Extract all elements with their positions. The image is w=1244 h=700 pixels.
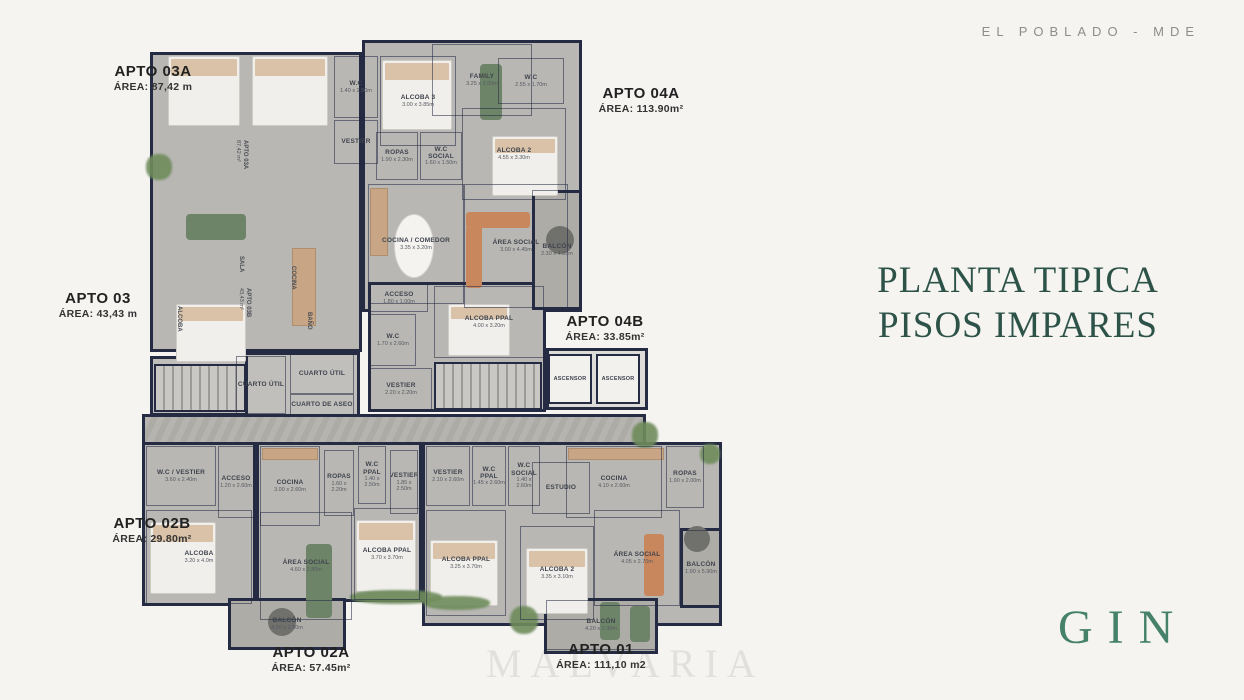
apartment-label: APTO 01ÁREA: 111,10 m2 xyxy=(556,642,646,671)
plant-icon xyxy=(424,596,490,610)
apartment-label: APTO 04BÁREA: 33.85m² xyxy=(565,314,644,343)
rotated-room-label: BAÑO xyxy=(305,312,312,330)
apartment-label: APTO 03AÁREA: 87,42 m xyxy=(114,64,193,93)
apartment-label: APTO 03ÁREA: 43,43 m xyxy=(59,291,138,320)
bed-icon xyxy=(492,136,558,196)
sofa-g-icon xyxy=(306,544,332,618)
bed-icon xyxy=(526,548,588,614)
sofa-o-icon xyxy=(466,226,482,288)
sofa-g-icon xyxy=(186,214,246,240)
rotated-room-label: ALCOBA xyxy=(175,306,182,332)
sofa-g-icon xyxy=(600,602,620,640)
bed-icon xyxy=(176,304,246,362)
sofa-g-icon xyxy=(480,64,502,120)
apartment-label: APTO 02AÁREA: 57.45m² xyxy=(271,645,350,674)
plant-icon xyxy=(700,444,720,464)
rotated-room-label: SALA xyxy=(237,256,244,272)
stairs-icon xyxy=(154,364,246,412)
rotated-room-label: APTO 03A87,42 m² xyxy=(234,140,248,169)
sofa-g-icon xyxy=(630,606,650,642)
rotated-room-label: COCINA xyxy=(289,266,296,290)
rotated-room-label: APTO 03B43,43 m² xyxy=(237,288,251,317)
table-w-icon xyxy=(394,214,434,278)
plant-icon xyxy=(510,606,538,634)
wood-icon xyxy=(568,448,664,460)
bed-icon xyxy=(252,56,328,126)
apartment-label: APTO 02BÁREA: 29.80m² xyxy=(112,516,191,545)
table-d-icon xyxy=(546,226,574,254)
apartment-label: APTO 04AÁREA: 113.90m² xyxy=(599,86,684,115)
bed-icon xyxy=(356,520,416,592)
slide: MALVARIA W.C1.40 x 2.50mVESTIERALCOBA 33… xyxy=(0,0,1244,700)
plan-block-floor2 xyxy=(232,352,360,418)
plant-icon xyxy=(632,422,658,448)
sofa-o-icon xyxy=(644,534,664,596)
table-d-icon xyxy=(684,526,710,552)
wood-icon xyxy=(370,188,388,256)
plant-icon xyxy=(146,154,172,180)
table-d-icon xyxy=(268,608,296,636)
stairs-icon xyxy=(434,362,542,410)
plan-block-lobby xyxy=(546,348,648,410)
bed-icon xyxy=(448,304,510,356)
bed-icon xyxy=(382,60,452,130)
wood-icon xyxy=(262,448,318,460)
